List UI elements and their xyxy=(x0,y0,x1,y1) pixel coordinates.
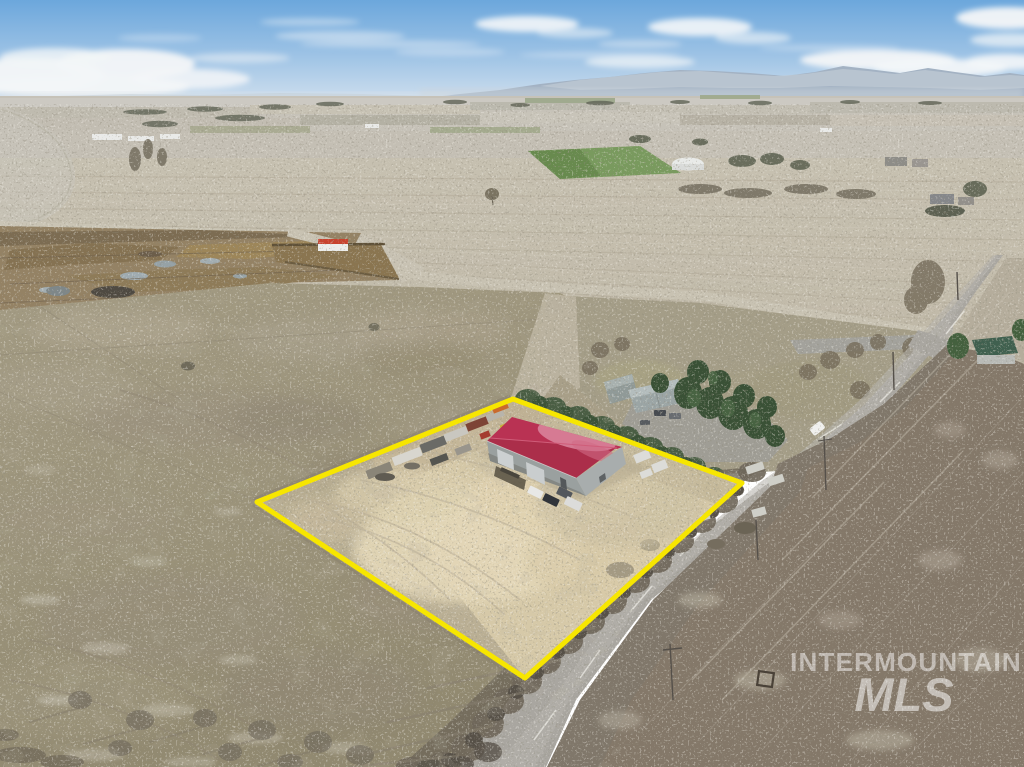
svg-text:MLS: MLS xyxy=(854,668,953,721)
